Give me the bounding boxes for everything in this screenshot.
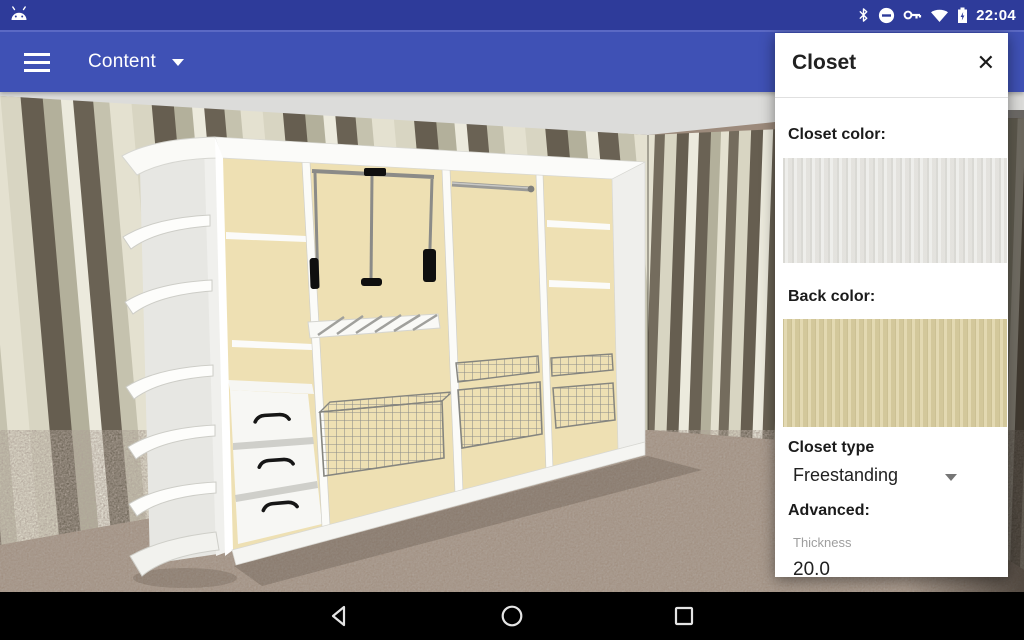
wire-basket[interactable] [551,354,615,428]
close-icon[interactable]: ✕ [977,50,995,76]
panel-header: Closet ✕ [775,33,1008,97]
wifi-icon [930,8,949,23]
bluetooth-icon [857,6,870,24]
chevron-down-icon[interactable] [172,59,184,66]
home-icon [500,604,524,628]
divider [775,97,1008,98]
back-icon [328,604,352,628]
closet-properties-panel: Closet ✕ Closet color: Back color: Close… [775,33,1008,577]
wire-basket[interactable] [456,356,542,448]
advanced-label: Advanced: [788,502,870,520]
drawer-stack[interactable] [230,390,322,544]
thickness-field[interactable]: 20.0 [793,559,830,577]
vpn-key-icon [903,7,922,23]
closet-color-label: Closet color: [788,126,886,144]
back-color-swatch[interactable] [783,319,1007,427]
back-button[interactable] [316,598,364,634]
recents-button[interactable] [660,598,708,634]
closet-type-dropdown[interactable]: Freestanding [793,465,898,486]
android-head-icon [8,5,30,25]
battery-charging-icon [957,6,968,24]
recents-icon [672,604,696,628]
content-menu-button[interactable]: Content [88,51,156,73]
dropdown-arrow-icon[interactable] [945,474,957,481]
closet-end-panel [612,162,645,449]
clock: 22:04 [976,7,1016,24]
closet-color-swatch[interactable] [783,158,1007,263]
do-not-disturb-icon [878,7,895,24]
screen: 22:04 Content [0,0,1024,640]
menu-icon[interactable] [24,53,50,72]
panel-title: Closet [792,51,856,75]
back-color-label: Back color: [788,288,875,306]
home-button[interactable] [488,598,536,634]
status-bar: 22:04 [0,0,1024,30]
android-navbar [0,592,1024,640]
thickness-label: Thickness [793,535,852,550]
closet-type-label: Closet type [788,439,874,457]
